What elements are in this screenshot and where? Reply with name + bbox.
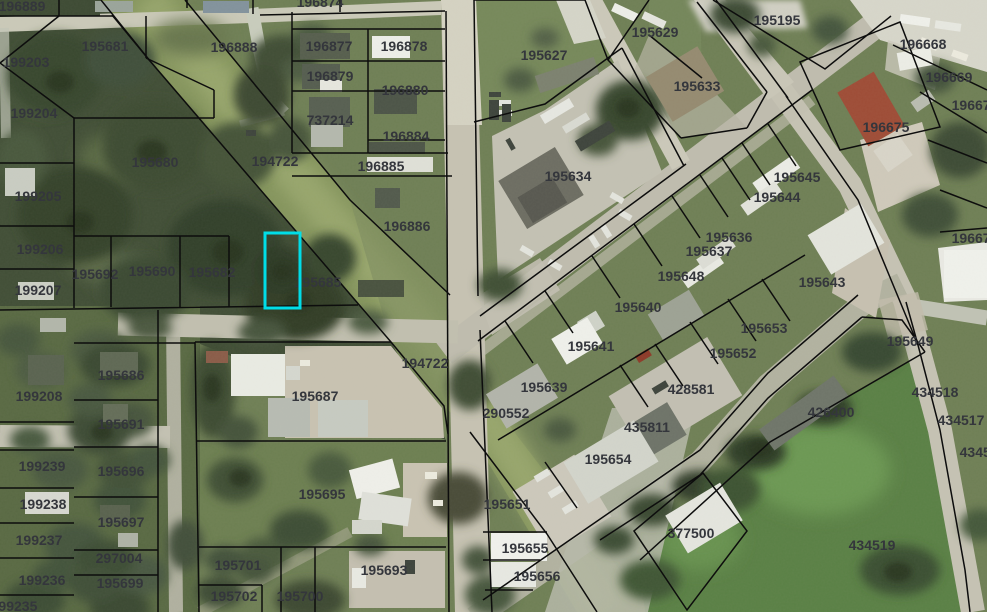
svg-text:434518: 434518 <box>912 384 959 400</box>
svg-text:196879: 196879 <box>307 68 354 84</box>
svg-text:199205: 199205 <box>15 188 62 204</box>
svg-text:737214: 737214 <box>307 112 354 128</box>
svg-text:196880: 196880 <box>382 82 429 98</box>
svg-text:199237: 199237 <box>16 532 63 548</box>
svg-text:435811: 435811 <box>624 419 670 435</box>
svg-text:199207: 199207 <box>15 282 62 298</box>
svg-text:199235: 199235 <box>0 598 38 612</box>
svg-text:195681: 195681 <box>82 38 129 54</box>
svg-text:196885: 196885 <box>358 158 405 174</box>
svg-text:199236: 199236 <box>19 572 66 588</box>
svg-text:195693: 195693 <box>361 562 408 578</box>
svg-text:195691: 195691 <box>98 416 145 432</box>
svg-text:195655: 195655 <box>502 540 549 556</box>
svg-text:195692: 195692 <box>72 266 119 282</box>
svg-text:195195: 195195 <box>754 12 801 28</box>
svg-text:195685: 195685 <box>295 274 342 290</box>
svg-text:195639: 195639 <box>521 379 568 395</box>
svg-text:195637: 195637 <box>686 243 733 259</box>
svg-text:195699: 195699 <box>97 575 144 591</box>
svg-text:196888: 196888 <box>211 39 258 55</box>
svg-text:194722: 194722 <box>252 153 299 169</box>
svg-text:434517: 434517 <box>938 412 985 428</box>
svg-text:434516: 434516 <box>960 444 987 460</box>
svg-text:195644: 195644 <box>754 189 801 205</box>
svg-text:196671: 196671 <box>952 230 987 246</box>
svg-text:195690: 195690 <box>129 263 176 279</box>
svg-text:195682: 195682 <box>189 264 236 280</box>
svg-text:195651: 195651 <box>484 496 531 512</box>
svg-text:428581: 428581 <box>668 381 715 397</box>
svg-text:196669: 196669 <box>926 69 973 85</box>
svg-text:195680: 195680 <box>132 154 179 170</box>
svg-text:196884: 196884 <box>383 128 430 144</box>
svg-text:196878: 196878 <box>381 38 428 54</box>
svg-text:195645: 195645 <box>774 169 821 185</box>
svg-text:195686: 195686 <box>98 367 145 383</box>
svg-text:195627: 195627 <box>521 47 568 63</box>
svg-text:196874: 196874 <box>297 0 344 10</box>
svg-text:195643: 195643 <box>799 274 846 290</box>
svg-text:199238: 199238 <box>20 496 67 512</box>
svg-text:195695: 195695 <box>299 486 346 502</box>
svg-text:195649: 195649 <box>887 333 934 349</box>
svg-text:196889: 196889 <box>0 0 46 14</box>
svg-text:195700: 195700 <box>277 588 324 604</box>
svg-text:195656: 195656 <box>514 568 561 584</box>
svg-text:196877: 196877 <box>306 38 353 54</box>
svg-text:195641: 195641 <box>568 338 615 354</box>
svg-text:195634: 195634 <box>545 168 592 184</box>
svg-text:195648: 195648 <box>658 268 705 284</box>
svg-text:195633: 195633 <box>674 78 721 94</box>
svg-text:194722: 194722 <box>402 355 449 371</box>
svg-text:199239: 199239 <box>19 458 66 474</box>
svg-text:195697: 195697 <box>98 514 145 530</box>
svg-text:196670: 196670 <box>952 97 987 113</box>
svg-text:195696: 195696 <box>98 463 145 479</box>
svg-text:297004: 297004 <box>96 550 143 566</box>
svg-text:377500: 377500 <box>668 525 715 541</box>
svg-text:199208: 199208 <box>16 388 63 404</box>
svg-text:199203: 199203 <box>3 54 50 70</box>
svg-text:195629: 195629 <box>632 24 679 40</box>
svg-text:434519: 434519 <box>849 537 896 553</box>
svg-text:290552: 290552 <box>483 405 530 421</box>
svg-text:195701: 195701 <box>215 557 262 573</box>
svg-text:196675: 196675 <box>863 119 910 135</box>
svg-text:199206: 199206 <box>17 241 64 257</box>
svg-text:195652: 195652 <box>710 345 757 361</box>
svg-text:199204: 199204 <box>11 105 58 121</box>
svg-text:196886: 196886 <box>384 218 431 234</box>
svg-text:195654: 195654 <box>585 451 632 467</box>
svg-text:195640: 195640 <box>615 299 662 315</box>
svg-text:426400: 426400 <box>808 404 855 420</box>
svg-text:196668: 196668 <box>900 36 947 52</box>
svg-text:195653: 195653 <box>741 320 788 336</box>
svg-text:195687: 195687 <box>292 388 339 404</box>
svg-text:195702: 195702 <box>211 588 258 604</box>
